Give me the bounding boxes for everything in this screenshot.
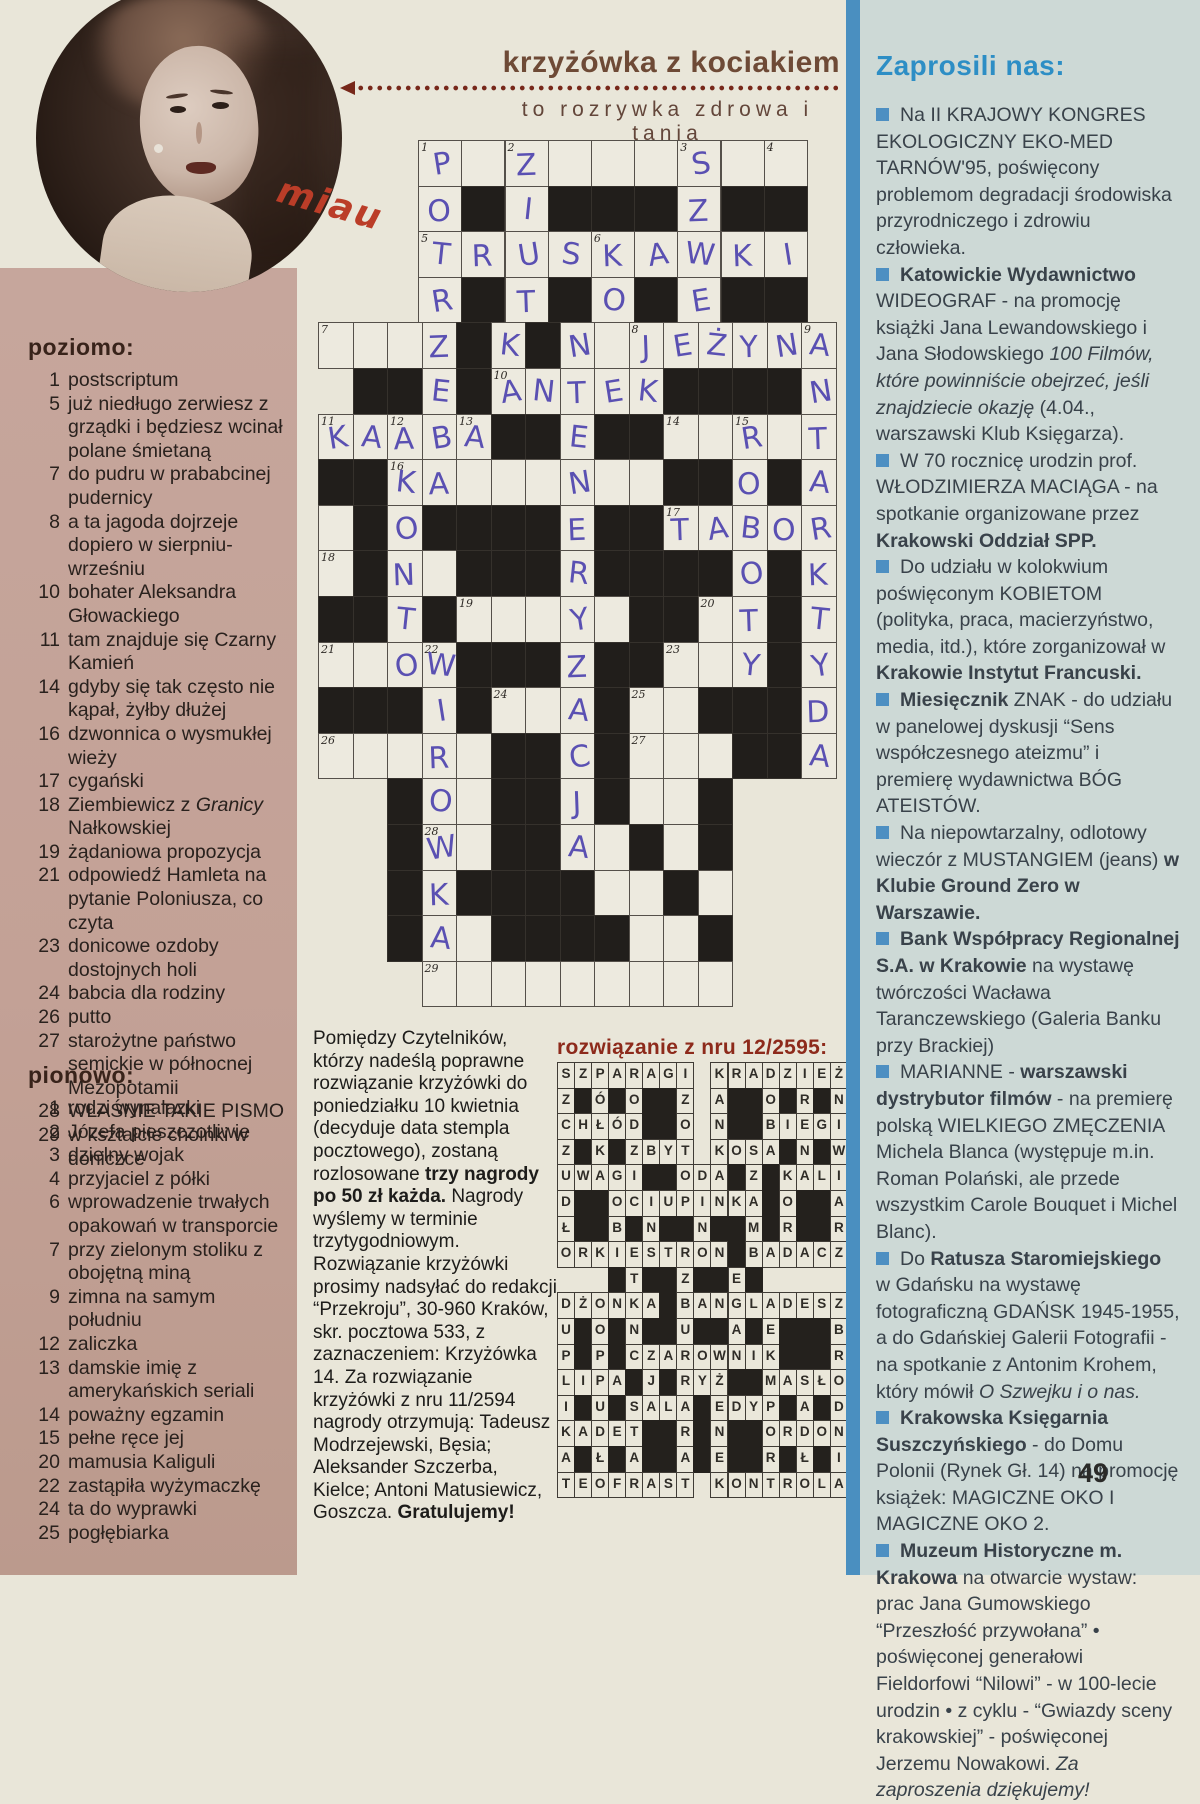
grid-cell-black — [732, 687, 768, 734]
solution-cell: Z — [676, 1088, 694, 1115]
solution-cell: L — [557, 1369, 575, 1396]
grid-cell-black — [594, 733, 630, 780]
grid-cell-black — [629, 414, 665, 461]
solution-letter: E — [575, 1476, 591, 1491]
grid-cell-black — [353, 505, 389, 552]
solution-letter: G — [729, 1296, 745, 1311]
grid-cell — [591, 140, 635, 187]
grid-cell: 13A — [456, 414, 492, 461]
text-run: Józefa pieszczotliwie — [68, 1121, 250, 1143]
solution-cell-black — [574, 1395, 592, 1422]
solution-letter: E — [626, 1245, 642, 1260]
grid-cell: 12A — [387, 414, 423, 461]
solution-cell: Ł — [591, 1446, 609, 1473]
solution-letter: N — [711, 1245, 727, 1260]
invitation-item: Miesięcznik ZNAK - do udziału w panelowe… — [876, 687, 1180, 820]
clue-item: 14poważny egzamin — [34, 1404, 286, 1428]
clue-number: 2 — [34, 1121, 60, 1145]
grid-cell: A — [560, 824, 596, 871]
solution-letter: B — [609, 1220, 625, 1235]
solution-letter: Ł — [797, 1450, 813, 1465]
solution-cell-black — [574, 1318, 592, 1345]
grid-cell: K — [491, 322, 527, 369]
solution-cell: R — [574, 1241, 592, 1268]
solution-cell-black — [693, 1318, 711, 1345]
square-bullet-icon — [876, 1065, 889, 1078]
solution-cell: B — [642, 1139, 660, 1166]
handwritten-letter: B — [732, 506, 770, 551]
solution-cell: R — [779, 1472, 797, 1499]
text-run: damskie imię z amerykańskich seriali — [68, 1357, 254, 1403]
solution-cell: L — [745, 1292, 763, 1319]
handwritten-letter: E — [559, 509, 594, 552]
grid-cell — [491, 961, 527, 1008]
solution-letter: A — [643, 1399, 659, 1414]
grid-cell-black — [764, 277, 808, 324]
clue-number: 1 — [34, 1097, 60, 1121]
clue-item: 1postscriptum — [34, 369, 286, 393]
solution-cell: O — [693, 1241, 711, 1268]
grid-cell-black — [594, 414, 630, 461]
dotted-arrow — [356, 84, 838, 92]
solution-cell: N — [710, 1420, 728, 1447]
square-bullet-icon — [876, 1252, 889, 1265]
grid-cell-black — [387, 824, 423, 871]
solution-cell: N — [710, 1241, 728, 1268]
solution-letter: A — [643, 1476, 659, 1491]
grid-cell-black — [594, 642, 630, 689]
solution-cell-black — [813, 1395, 831, 1422]
clue-number: 6 — [34, 1191, 60, 1215]
clue-number: 13 — [34, 1357, 60, 1381]
grid-cell — [461, 140, 505, 187]
solution-letter: I — [746, 1348, 762, 1363]
solution-cell: E — [625, 1241, 643, 1268]
solution-letter: I — [780, 1117, 796, 1132]
clue-number: 27 — [34, 1030, 60, 1054]
solution-cell: P — [557, 1344, 575, 1371]
solution-cell: S — [557, 1062, 575, 1089]
solution-letter: G — [609, 1168, 625, 1183]
solution-cell-black — [813, 1190, 831, 1217]
grid-cell — [663, 915, 699, 962]
cell-number: 25 — [632, 688, 646, 701]
grid-cell: E — [663, 322, 699, 369]
handwritten-letter: T — [662, 509, 697, 552]
solution-cell: O — [728, 1472, 746, 1499]
solution-letter: Y — [660, 1143, 676, 1158]
grid-cell — [353, 322, 389, 369]
grid-cell: 17T — [663, 505, 699, 552]
grid-cell — [456, 733, 492, 780]
solution-letter: T — [626, 1271, 642, 1286]
solution-cell: N — [608, 1292, 626, 1319]
text-run: wprowadzenie trwałych opakowań w transpo… — [68, 1191, 278, 1237]
solution-cell-black — [608, 1344, 626, 1371]
solution-cell: M — [745, 1216, 763, 1243]
clue-item: 26putto — [34, 1006, 286, 1030]
grid-cell: A — [560, 687, 596, 734]
solution-cell: O — [608, 1190, 626, 1217]
solution-cell: K — [779, 1164, 797, 1191]
solution-letter: A — [677, 1399, 693, 1414]
solution-letter: E — [729, 1271, 745, 1286]
clue-item: 21odpowiedź Hamleta na pytanie Poloniusz… — [34, 864, 286, 935]
photo-nose — [196, 122, 202, 144]
solution-cell-black — [693, 1420, 711, 1447]
grid-cell — [387, 322, 423, 369]
solution-letter: O — [558, 1245, 574, 1260]
handwritten-letter: A — [421, 917, 459, 962]
solution-cell: R — [779, 1216, 797, 1243]
solution-cell-black — [745, 1267, 763, 1294]
solution-letter: K — [711, 1476, 727, 1491]
solution-cell-black — [762, 1216, 780, 1243]
grid-cell-black — [698, 550, 734, 597]
solution-cell: R — [676, 1369, 694, 1396]
handwritten-letter: U — [505, 232, 553, 280]
grid-cell: 14 — [663, 414, 699, 461]
clue-number: 25 — [34, 1522, 60, 1546]
grid-cell: N — [560, 459, 596, 506]
clue-number: 9 — [34, 1286, 60, 1310]
text-run: - na premierę polską WIELKIEGO ZMĘCZENIA… — [876, 1088, 1177, 1243]
solution-letter: T — [677, 1476, 693, 1491]
text-run: MARIANNE - — [900, 1061, 1020, 1083]
handwritten-letter: W — [677, 232, 723, 278]
invitations-heading: Zaprosili nas: — [876, 50, 1180, 82]
solution-cell: G — [813, 1113, 831, 1140]
grid-cell-black — [525, 414, 561, 461]
text-run: a ta jagoda dojrzeje dopiero w sierpniu-… — [68, 511, 238, 580]
solution-letter: O — [831, 1373, 847, 1388]
grid-cell: 8J — [629, 322, 665, 369]
square-bullet-icon — [876, 108, 889, 121]
solution-letter: R — [626, 1476, 642, 1491]
grid-cell — [353, 733, 389, 780]
photo-lips — [186, 162, 216, 174]
grid-cell: Ż — [698, 322, 734, 369]
handwritten-letter: Z — [421, 327, 456, 370]
solution-letter: A — [763, 1143, 779, 1158]
solution-letter: R — [780, 1424, 796, 1439]
page-number: 49 — [1078, 1458, 1108, 1489]
text-run: Granicy — [196, 794, 263, 816]
solution-cell-black — [745, 1088, 763, 1115]
handwritten-letter: O — [421, 780, 459, 825]
solution-cell: A — [591, 1164, 609, 1191]
solution-cell: A — [676, 1395, 694, 1422]
solution-cell: I — [608, 1241, 626, 1268]
solution-cell-black — [608, 1088, 626, 1115]
cell-number: 24 — [494, 688, 508, 701]
solution-cell: K — [557, 1420, 575, 1447]
grid-cell-black — [456, 642, 492, 689]
text-run: pogłębiarka — [68, 1522, 169, 1544]
grid-cell — [594, 596, 630, 643]
solution-cell-black — [642, 1164, 660, 1191]
grid-cell — [525, 687, 561, 734]
clue-number: 11 — [34, 629, 60, 653]
grid-cell: Y — [732, 322, 768, 369]
grid-cell-black — [456, 368, 492, 415]
solution-cell: R — [762, 1446, 780, 1473]
solution-cell: E — [762, 1318, 780, 1345]
clue-number: 7 — [34, 463, 60, 487]
grid-cell-black — [387, 870, 423, 917]
grid-cell-black — [629, 642, 665, 689]
solution-letter: W — [575, 1168, 591, 1183]
solution-cell: D — [728, 1395, 746, 1422]
solution-letter: N — [694, 1220, 710, 1235]
handwritten-letter: R — [801, 506, 841, 553]
square-bullet-icon — [876, 268, 889, 281]
grid-cell: A — [353, 414, 389, 461]
clue-number: 26 — [34, 1006, 60, 1030]
solution-cell: Z — [779, 1062, 797, 1089]
solution-letter: E — [814, 1066, 830, 1081]
clue-item: 4przyjaciel z półki — [34, 1168, 286, 1192]
text-run: Ratusza Staromiejskiego — [930, 1248, 1161, 1270]
grid-cell — [698, 961, 734, 1008]
solution-heading: rozwiązanie z nru 12/2595: — [557, 1036, 827, 1060]
text-run: gdyby się tak często nie kąpał, żyłby dł… — [68, 676, 275, 722]
grid-cell — [698, 870, 734, 917]
text-run: pełne ręce jej — [68, 1427, 184, 1449]
solution-cell: I — [779, 1113, 797, 1140]
grid-cell-black — [663, 368, 699, 415]
text-run: do pudru w prababcinej pudernicy — [68, 463, 271, 509]
clue-item: 17cygański — [34, 770, 286, 794]
cell-number: 19 — [459, 597, 473, 610]
solution-letter: A — [643, 1066, 659, 1081]
handwritten-letter: A — [801, 461, 839, 506]
grid-cell-black — [461, 186, 505, 233]
handwritten-letter: R — [421, 737, 456, 780]
solution-cell: O — [728, 1139, 746, 1166]
grid-cell: I — [764, 231, 808, 278]
text-run: Na niepowtarzalny, odlotowy wieczór z MU… — [876, 822, 1164, 871]
solution-letter: I — [831, 1450, 847, 1465]
solution-cell-black — [659, 1446, 677, 1473]
grid-cell-black — [767, 368, 803, 415]
grid-cell — [629, 961, 665, 1008]
solution-letter: D — [831, 1399, 847, 1414]
solution-cell: E — [608, 1420, 626, 1447]
solution-cell: A — [745, 1190, 763, 1217]
grid-cell-black — [663, 550, 699, 597]
solution-letter: K — [626, 1296, 642, 1311]
solution-cell-black — [659, 1216, 677, 1243]
solution-letter: L — [558, 1373, 574, 1388]
solution-cell: O — [676, 1164, 694, 1191]
grid-cell-black — [491, 870, 527, 917]
handwritten-letter: N — [386, 555, 421, 598]
text-run: postscriptum — [68, 369, 179, 391]
solution-letter: S — [626, 1399, 642, 1414]
solution-letter: O — [677, 1117, 693, 1132]
solution-cell: Ł — [591, 1113, 609, 1140]
solution-letter: H — [575, 1117, 591, 1132]
solution-letter: Z — [643, 1348, 659, 1363]
solution-letter: C — [626, 1348, 642, 1363]
grid-cell: C — [560, 733, 596, 780]
solution-cell: A — [608, 1062, 626, 1089]
solution-letter: R — [797, 1092, 813, 1107]
grid-cell: Y — [801, 642, 837, 689]
solution-letter: O — [780, 1194, 796, 1209]
grid-cell — [663, 778, 699, 825]
grid-cell: N — [767, 322, 803, 369]
solution-letter: R — [677, 1373, 693, 1388]
handwritten-letter: I — [764, 232, 812, 280]
solution-letter: A — [797, 1245, 813, 1260]
solution-letter: A — [746, 1194, 762, 1209]
solution-cell: B — [762, 1113, 780, 1140]
solution-letter: Ł — [558, 1220, 574, 1235]
solution-cell: U — [591, 1395, 609, 1422]
grid-cell — [456, 459, 492, 506]
grid-cell: N — [560, 322, 596, 369]
solution-cell: P — [591, 1369, 609, 1396]
solution-letter: C — [814, 1245, 830, 1260]
solution-cell: Ł — [813, 1369, 831, 1396]
solution-cell: N — [745, 1472, 763, 1499]
grid-cell-black — [663, 596, 699, 643]
handwritten-letter: A — [559, 825, 597, 870]
grid-cell — [456, 778, 492, 825]
handwritten-letter: K — [421, 874, 456, 917]
solution-cell-black — [693, 1395, 711, 1422]
grid-cell — [456, 961, 492, 1008]
solution-letter: O — [592, 1476, 608, 1491]
text-run: bohater Aleksandra Głowackiego — [68, 581, 236, 627]
grid-cell: N — [525, 368, 561, 415]
clue-number: 10 — [34, 581, 60, 605]
handwritten-letter: S — [677, 141, 725, 189]
grid-cell-black — [491, 824, 527, 871]
text-run: ta do wyprawki — [68, 1498, 197, 1520]
solution-cell: T — [676, 1472, 694, 1499]
solution-cell: C — [557, 1113, 575, 1140]
grid-cell: T — [801, 414, 837, 461]
solution-letter: N — [711, 1424, 727, 1439]
grid-cell-black — [525, 733, 561, 780]
handwritten-letter: N — [525, 369, 563, 414]
solution-cell-black — [745, 1318, 763, 1345]
solution-cell-black — [676, 1216, 694, 1243]
solution-cell-black — [659, 1420, 677, 1447]
square-bullet-icon — [876, 932, 889, 945]
handwritten-letter: E — [559, 415, 597, 460]
solution-letter: O — [729, 1476, 745, 1491]
solution-letter: L — [746, 1296, 762, 1311]
text-run: tam znajduje się Czarny Kamień — [68, 629, 276, 675]
solution-cell: A — [676, 1446, 694, 1473]
grid-cell-black — [698, 824, 734, 871]
solution-cell: F — [608, 1472, 626, 1499]
clue-number: 3 — [34, 1144, 60, 1168]
clue-item: 7przy zielonym stoliku z obojętną miną — [34, 1239, 286, 1286]
solution-letter: U — [558, 1168, 574, 1183]
clue-number: 24 — [34, 1498, 60, 1522]
text-run: Krakowie Instytut Francuski. — [876, 662, 1142, 684]
solution-letter: S — [558, 1066, 574, 1081]
solution-cell-black — [659, 1113, 677, 1140]
solution-letter: Z — [677, 1271, 693, 1286]
solution-cell-black — [813, 1139, 831, 1166]
solution-letter: O — [626, 1092, 642, 1107]
grid-cell: E — [594, 368, 630, 415]
solution-letter: J — [643, 1373, 659, 1388]
solution-cell: C — [625, 1190, 643, 1217]
solution-letter: Z — [558, 1092, 574, 1107]
grid-cell: D — [801, 687, 837, 734]
text-run: przy zielonym stoliku z obojętną miną — [68, 1239, 263, 1285]
text-run: Miesięcznik — [900, 689, 1008, 711]
clue-item: 3dzielny wojak — [34, 1144, 286, 1168]
solution-cell: A — [642, 1395, 660, 1422]
text-run: Do udziału w kolokwium poświęconym KOBIE… — [876, 556, 1165, 658]
clue-item: 1rodzi wynalazki — [34, 1097, 286, 1121]
clue-number: 17 — [34, 770, 60, 794]
grid-cell-black — [353, 459, 389, 506]
solution-letter: E — [609, 1424, 625, 1439]
grid-cell: 27 — [629, 733, 665, 780]
clue-item: 2Józefa pieszczotliwie — [34, 1121, 286, 1145]
solution-letter: B — [643, 1143, 659, 1158]
handwritten-letter: T — [418, 232, 464, 278]
solution-letter: B — [831, 1322, 847, 1337]
solution-cell: T — [625, 1267, 643, 1294]
solution-letter: E — [711, 1399, 727, 1414]
solution-cell: D — [557, 1292, 575, 1319]
solution-letter: Y — [694, 1373, 710, 1388]
square-bullet-icon — [876, 1411, 889, 1424]
grid-cell-black — [594, 778, 630, 825]
grid-cell-black — [456, 505, 492, 552]
invitation-item: Do udziału w kolokwium poświęconym KOBIE… — [876, 554, 1180, 687]
solution-cell-black — [642, 1088, 660, 1115]
handwritten-letter: N — [801, 369, 841, 416]
solution-cell: N — [710, 1190, 728, 1217]
grid-cell-black — [491, 550, 527, 597]
solution-cell-black — [608, 1446, 626, 1473]
grid-cell: E — [560, 505, 596, 552]
solution-letter: B — [677, 1296, 693, 1311]
grid-cell: K — [721, 231, 765, 278]
solution-letter: Z — [677, 1092, 693, 1107]
handwritten-letter: K — [490, 324, 528, 369]
handwritten-letter: K — [387, 461, 425, 506]
solution-cell: O — [625, 1088, 643, 1115]
text-run: Gratulujemy! — [397, 1502, 514, 1523]
solution-letter: A — [592, 1168, 608, 1183]
solution-cell: S — [625, 1395, 643, 1422]
solution-cell: B — [608, 1216, 626, 1243]
solution-letter: K — [711, 1066, 727, 1081]
solution-cell: E — [796, 1292, 814, 1319]
grid-cell-black — [318, 596, 354, 643]
clue-number: 12 — [34, 1333, 60, 1357]
solution-cell: B — [676, 1292, 694, 1319]
cell-number: 29 — [425, 962, 439, 975]
solution-cell: R — [676, 1344, 694, 1371]
grid-cell-black — [387, 687, 423, 734]
cell-number: 27 — [632, 734, 646, 747]
solution-letter: D — [558, 1296, 574, 1311]
grid-cell-black — [548, 186, 592, 233]
